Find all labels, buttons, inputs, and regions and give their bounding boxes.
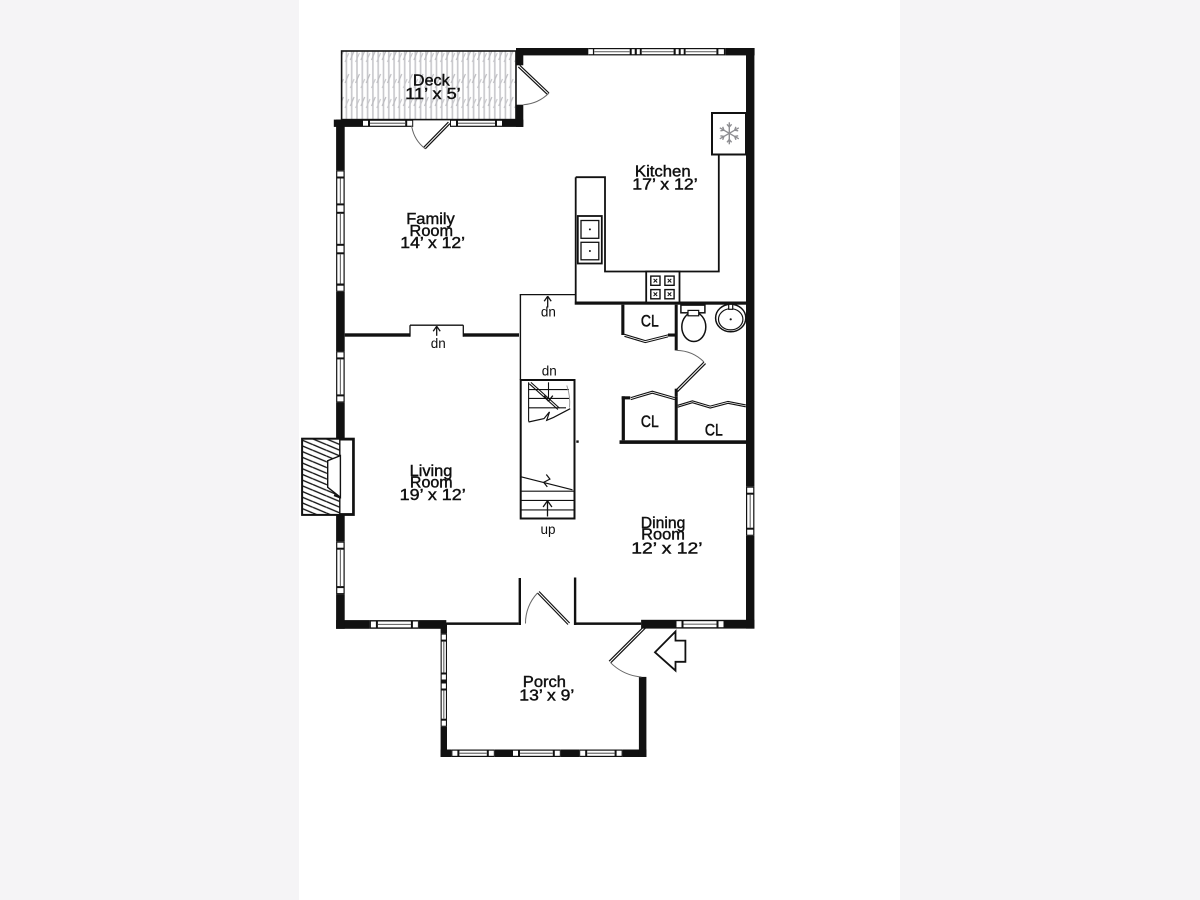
svg-text:dn: dn [542, 364, 557, 379]
svg-text:up: up [540, 522, 555, 537]
svg-text:12’ x 12’: 12’ x 12’ [631, 540, 702, 557]
svg-text:CL: CL [641, 413, 659, 431]
svg-text:14’ x 12’: 14’ x 12’ [400, 235, 465, 252]
svg-text:11’ x 5’: 11’ x 5’ [405, 86, 460, 103]
svg-text:19’ x 12’: 19’ x 12’ [400, 487, 466, 504]
svg-text:CL: CL [705, 422, 723, 440]
svg-text:CL: CL [641, 312, 659, 330]
svg-text:dn: dn [431, 336, 446, 351]
svg-text:dn: dn [541, 304, 556, 319]
svg-text:13’ x 9’: 13’ x 9’ [519, 688, 574, 705]
svg-text:17’ x 12’: 17’ x 12’ [632, 177, 697, 194]
